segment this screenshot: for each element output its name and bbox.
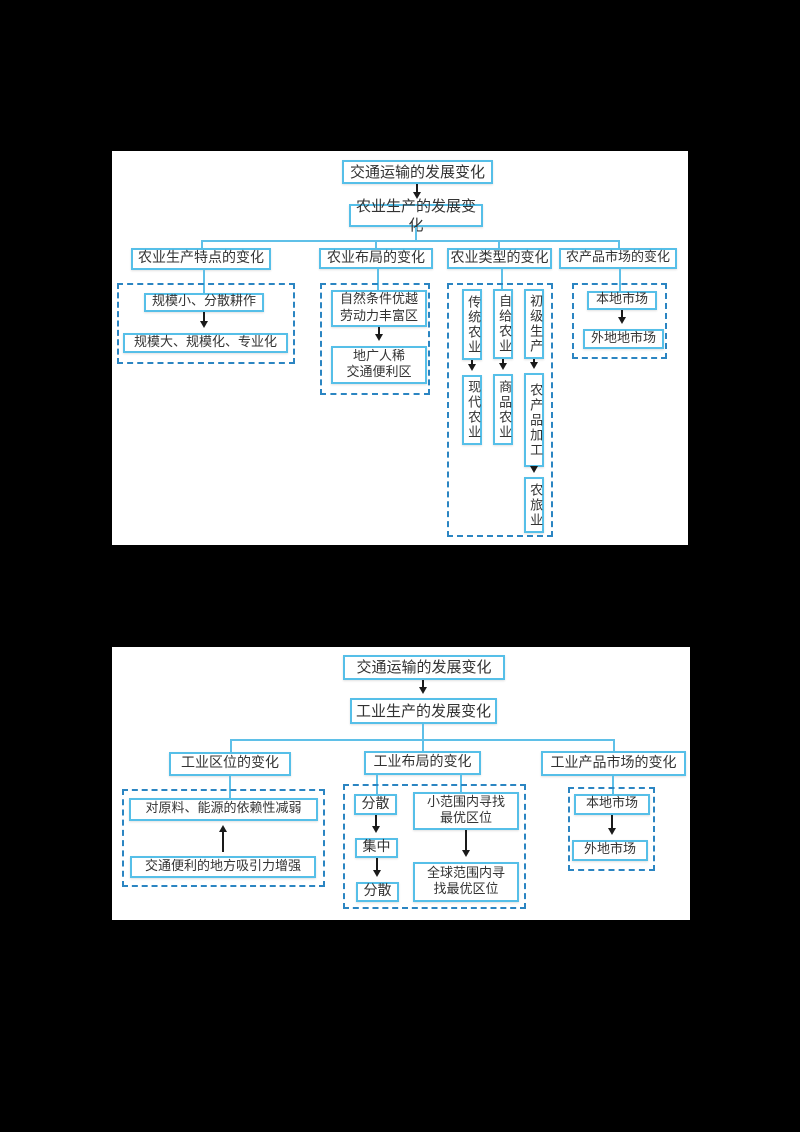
node-outside-market: 外地地市场 — [583, 329, 664, 349]
node-small-scale-scattered: 规模小、分散耕作 — [144, 293, 264, 312]
industry-diagram-panel: 交通运输的发展变化 工业生产的发展变化 工业区位的变化 工业布局的变化 工业产品… — [112, 647, 690, 920]
node-transport-development: 交通运输的发展变化 — [343, 655, 505, 680]
node-primary-production: 初级生产 — [524, 289, 544, 359]
node-outside-market: 外地市场 — [572, 840, 648, 861]
node-natural-conditions-region: 自然条件优越 劳动力丰富区 — [331, 290, 427, 327]
arrow-down — [378, 327, 380, 339]
connector-vline — [230, 739, 232, 752]
node-large-scale-specialized: 规模大、规模化、专业化 — [123, 333, 288, 353]
arrow-down — [416, 184, 418, 197]
node-local-market: 本地市场 — [574, 794, 650, 815]
connector-vline — [415, 227, 417, 240]
node-modern-agriculture: 现代农业 — [462, 375, 482, 445]
node-dispersed-2: 分散 — [356, 882, 399, 902]
node-optimal-location-small-range: 小范围内寻找 最优区位 — [413, 792, 519, 830]
agriculture-diagram-panel: 交通运输的发展变化 农业生产的发展变化 农业生产特点的变化 农业布局的变化 农业… — [112, 151, 688, 545]
connector-vline — [613, 739, 615, 751]
page-canvas: 交通运输的发展变化 农业生产的发展变化 农业生产特点的变化 农业布局的变化 农业… — [0, 0, 800, 1132]
node-agriculture-development: 农业生产的发展变化 — [349, 204, 483, 227]
header-agriculture-types: 农业类型的变化 — [447, 248, 552, 269]
node-concentrated: 集中 — [355, 838, 398, 858]
arrow-up — [222, 827, 224, 852]
node-subsistence-agriculture: 自给农业 — [493, 289, 513, 359]
node-dispersed-1: 分散 — [354, 794, 397, 815]
arrow-down — [471, 360, 473, 369]
node-convenient-transport-attracts: 交通便利的地方吸引力增强 — [130, 856, 316, 878]
node-optimal-location-global-range: 全球范围内寻 找最优区位 — [413, 862, 519, 902]
header-industry-product-market: 工业产品市场的变化 — [541, 751, 686, 776]
arrow-down — [376, 858, 378, 875]
header-industry-location: 工业区位的变化 — [169, 752, 291, 776]
header-agriculture-layout: 农业布局的变化 — [319, 248, 433, 269]
arrow-down — [502, 359, 504, 368]
node-local-market: 本地市场 — [587, 291, 657, 310]
arrow-down — [375, 815, 377, 831]
header-production-traits: 农业生产特点的变化 — [131, 248, 271, 270]
header-product-market: 农产品市场的变化 — [559, 248, 677, 269]
connector-vline — [422, 724, 424, 739]
connector-vline — [422, 739, 424, 751]
node-traditional-agriculture: 传统农业 — [462, 289, 482, 360]
arrow-down — [611, 815, 613, 833]
node-industry-development: 工业生产的发展变化 — [350, 698, 497, 724]
node-commercial-agriculture: 商品农业 — [493, 374, 513, 445]
connector-hline — [201, 240, 620, 242]
arrow-down — [465, 830, 467, 855]
node-raw-material-dependence-weakens: 对原料、能源的依赖性减弱 — [129, 798, 318, 821]
arrow-down — [203, 312, 205, 326]
arrow-down — [533, 467, 535, 471]
arrow-down — [422, 680, 424, 692]
node-agri-product-processing: 农产品加工 — [524, 373, 544, 467]
arrow-down — [621, 310, 623, 322]
node-sparse-population-region: 地广人稀 交通便利区 — [331, 346, 427, 384]
arrow-down — [533, 359, 535, 367]
node-agritourism: 农旅业 — [524, 477, 544, 533]
header-industry-layout: 工业布局的变化 — [364, 751, 481, 775]
node-transport-development: 交通运输的发展变化 — [342, 160, 493, 184]
